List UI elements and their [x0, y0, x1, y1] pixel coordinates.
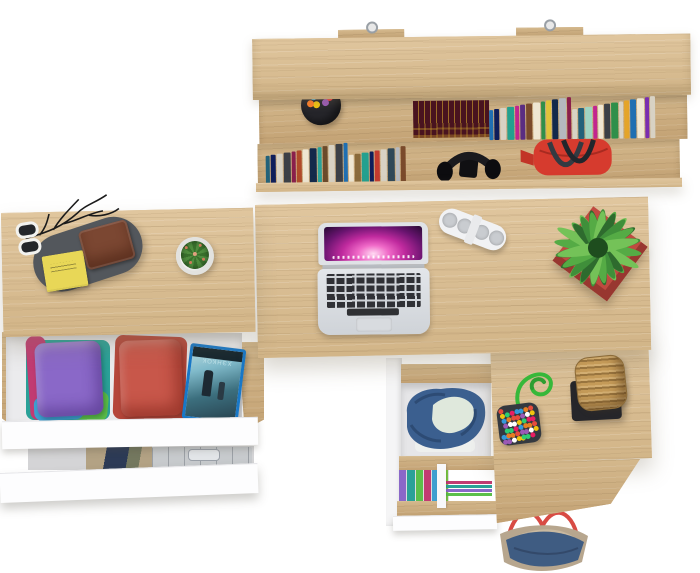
book-spine: [494, 109, 499, 140]
cactus-spine: [189, 261, 192, 264]
eyeglasses: [13, 219, 44, 259]
book-spine: [329, 145, 335, 185]
bead: [526, 416, 532, 422]
laptop-spacebar: [347, 308, 399, 316]
book-spine: [375, 150, 380, 184]
book-spine: [388, 148, 395, 184]
bead: [521, 434, 527, 440]
book-spine: [396, 147, 400, 184]
plant-leaves: [539, 197, 657, 311]
book-spine: [381, 149, 387, 184]
bead: [529, 410, 535, 416]
book-spine: [277, 154, 283, 186]
book-spine: [500, 108, 506, 140]
cactus-spine: [185, 246, 188, 249]
laptop-screen: [324, 226, 422, 261]
book-spine: [310, 148, 317, 185]
cactus-spine: [199, 244, 202, 247]
wicker-shade: [573, 354, 628, 413]
case-handle: [188, 449, 220, 461]
folded-clothes-pile: [26, 336, 112, 422]
clothes-stripe: [446, 489, 492, 492]
clothes-stripe: [424, 470, 431, 502]
cactus-spine: [193, 252, 197, 256]
bead: [511, 415, 517, 421]
book-spine: [507, 107, 514, 140]
pen: [313, 101, 320, 108]
book-spine: [355, 154, 361, 185]
book-spine: [343, 143, 348, 185]
clothes-stripe: [446, 481, 492, 484]
cover-figure: [201, 370, 213, 397]
book-spine: [303, 149, 309, 185]
cover-figure: [217, 382, 225, 401]
drawer-rail-top: [401, 364, 494, 383]
bead: [533, 426, 539, 432]
bluray-title: ХЭНКОК: [201, 354, 232, 368]
book-spine: [292, 151, 296, 185]
book-spine: [401, 146, 406, 184]
wall-shelf: [252, 17, 692, 192]
clothes-top-item: [119, 339, 184, 417]
note-scribble: [50, 260, 77, 272]
potted-plant: [539, 197, 657, 311]
cactus-spine: [202, 258, 205, 261]
book-spine: [362, 153, 369, 185]
bead: [508, 422, 514, 428]
book-spine: [271, 155, 276, 186]
drawer-rail-middle: [399, 456, 495, 470]
bead: [514, 409, 520, 415]
denim-clothes: [401, 383, 491, 456]
red-duffel-bag: [517, 130, 620, 185]
main-desk-top: [255, 197, 651, 358]
bluray-title-band: ХЭНКОК: [192, 346, 243, 362]
bead: [506, 433, 512, 439]
middle-drawer-open: [401, 383, 491, 456]
book-spine: [318, 147, 322, 185]
book-spine: [284, 153, 291, 186]
speaker-grille-icon: [487, 228, 506, 247]
clothes-stripe: [407, 470, 414, 502]
lower-drawer-clothes-right: [446, 481, 492, 497]
clothes-top-item: [34, 340, 104, 417]
book-spine: [335, 144, 343, 185]
sticky-notes: [41, 250, 88, 292]
book-spine: [637, 98, 644, 138]
bluray-case: ХЭНКОК: [182, 343, 247, 425]
book-spine: [489, 110, 493, 140]
book-spine: [624, 100, 629, 138]
leather-wallet: [78, 219, 137, 271]
laptop-keyboard: [327, 273, 421, 308]
pen: [307, 100, 314, 107]
book-spine: [630, 99, 636, 138]
book-spine: [266, 156, 270, 186]
side-desk-top: [1, 208, 256, 337]
bead: [530, 432, 536, 438]
drawer-divider: [437, 464, 446, 508]
clothes-stripe: [416, 470, 423, 502]
red-clothes-stack: [114, 334, 188, 422]
clothes-stripe: [446, 485, 492, 488]
bead: [503, 439, 509, 445]
book-spine: [297, 150, 302, 185]
product-photo-desk-set: ХЭНКОК: [0, 0, 700, 573]
headphones: [431, 139, 504, 184]
left-drawer-front: [2, 417, 258, 449]
laptop-trackpad: [356, 317, 392, 331]
book-spine: [349, 155, 354, 185]
book-row-bottom-shelf: [266, 144, 426, 186]
book-spine: [323, 146, 328, 185]
pen: [322, 99, 329, 106]
book-spine: [650, 96, 656, 138]
bead-toy: [496, 402, 543, 447]
folded-clothes: [86, 446, 152, 470]
book-spine: [619, 101, 623, 138]
shelf-top-board: [252, 34, 691, 100]
bead: [523, 423, 529, 429]
mount-hook-icon: [544, 19, 556, 31]
mount-hook-icon: [366, 21, 378, 33]
clothes-stripe: [399, 470, 406, 502]
laptop: [318, 222, 431, 335]
leather-book-set: [413, 100, 489, 138]
book-spine: [645, 97, 650, 138]
book-spine: [370, 152, 374, 185]
portable-speaker: [435, 205, 510, 254]
middle-drawer-front: [393, 514, 497, 531]
